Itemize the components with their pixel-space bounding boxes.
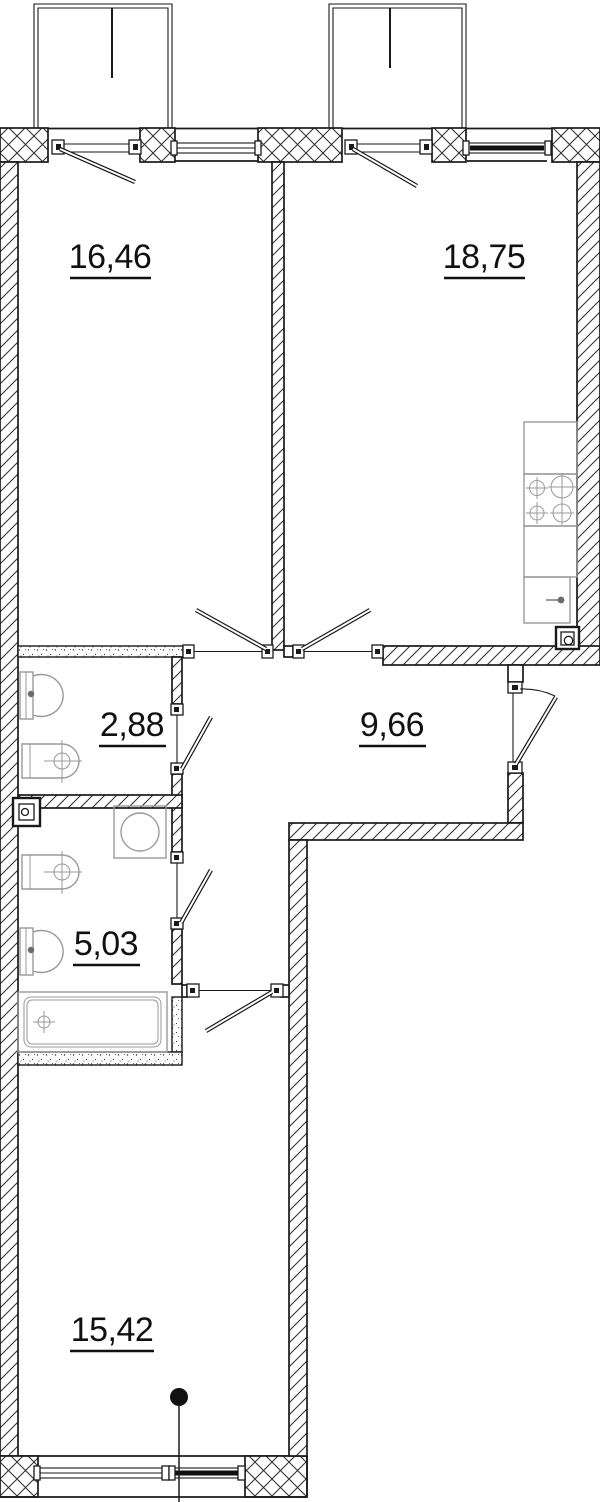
toilet-symbol bbox=[22, 740, 82, 783]
floor-plan-drawing: 16,46 18,75 2,88 9,66 5,03 15,42 bbox=[0, 0, 600, 1502]
wall-pier bbox=[0, 1456, 38, 1497]
wash-basin-symbol bbox=[20, 672, 63, 719]
balcony-left bbox=[34, 4, 172, 128]
area-label-room3: 15,42 bbox=[71, 1311, 154, 1349]
hallway-bottom-wall bbox=[289, 823, 523, 840]
entry-wall bbox=[508, 773, 523, 823]
wall-pier bbox=[258, 128, 342, 162]
kitchen-counter bbox=[524, 422, 577, 577]
door-leaf bbox=[196, 610, 266, 649]
door-leaf bbox=[353, 149, 417, 186]
window-room1 bbox=[171, 141, 261, 161]
bathroom-bottom-wall bbox=[18, 1052, 182, 1065]
vent-shaft-icon bbox=[13, 798, 40, 826]
wall-pier bbox=[140, 128, 175, 162]
door-leaf bbox=[516, 697, 556, 764]
wall-pier bbox=[0, 128, 48, 162]
door-leaf bbox=[182, 717, 211, 769]
wall-stub bbox=[284, 646, 293, 657]
right-exterior-wall bbox=[577, 162, 600, 648]
bathroom-door bbox=[171, 852, 211, 929]
door-leaf bbox=[206, 992, 272, 1031]
wall-pier bbox=[432, 128, 466, 162]
balcony-door-room2 bbox=[345, 140, 432, 186]
toilet-symbol bbox=[22, 851, 82, 894]
room3-right-wall bbox=[289, 840, 307, 1456]
window-room3-b bbox=[169, 1466, 245, 1480]
door-room2 bbox=[293, 610, 383, 658]
wall-pier bbox=[245, 1456, 307, 1497]
wall-stub bbox=[508, 665, 523, 682]
window-room3-a bbox=[34, 1466, 169, 1480]
bathtub-symbol bbox=[18, 992, 167, 1052]
kitchen-sink-symbol bbox=[524, 577, 570, 623]
section-marker bbox=[170, 1388, 188, 1502]
wc-top-wall bbox=[18, 646, 183, 657]
balcony-right bbox=[329, 4, 466, 128]
door-leaf bbox=[302, 610, 370, 649]
wc-door bbox=[171, 704, 211, 774]
area-label-bathroom: 5,03 bbox=[74, 925, 138, 963]
area-label-room1: 16,46 bbox=[69, 238, 152, 276]
washing-machine-symbol bbox=[114, 806, 166, 858]
top-exterior-wall bbox=[0, 128, 600, 186]
stove-burners-symbol bbox=[524, 473, 577, 526]
door-swing-arc bbox=[520, 689, 555, 696]
section-marker-dot bbox=[170, 1388, 188, 1406]
wall-between-rooms bbox=[272, 162, 284, 650]
wash-basin-symbol bbox=[20, 928, 63, 975]
area-label-hallway: 9,66 bbox=[360, 706, 424, 744]
entry-door bbox=[508, 682, 556, 773]
vent-shaft-icon bbox=[556, 627, 579, 649]
door-leaf bbox=[181, 870, 211, 923]
room3-door bbox=[182, 984, 289, 1031]
door-room1 bbox=[183, 610, 273, 658]
window-room2 bbox=[463, 141, 551, 161]
floor-plan: 16,46 18,75 2,88 9,66 5,03 15,42 bbox=[0, 0, 600, 1502]
wall-pier bbox=[552, 128, 600, 162]
area-label-room2: 18,75 bbox=[443, 238, 526, 276]
door-leaf bbox=[60, 149, 135, 182]
balcony-door-room1 bbox=[52, 140, 141, 182]
area-label-wc: 2,88 bbox=[100, 706, 164, 744]
bottom-exterior-wall bbox=[0, 1456, 307, 1497]
